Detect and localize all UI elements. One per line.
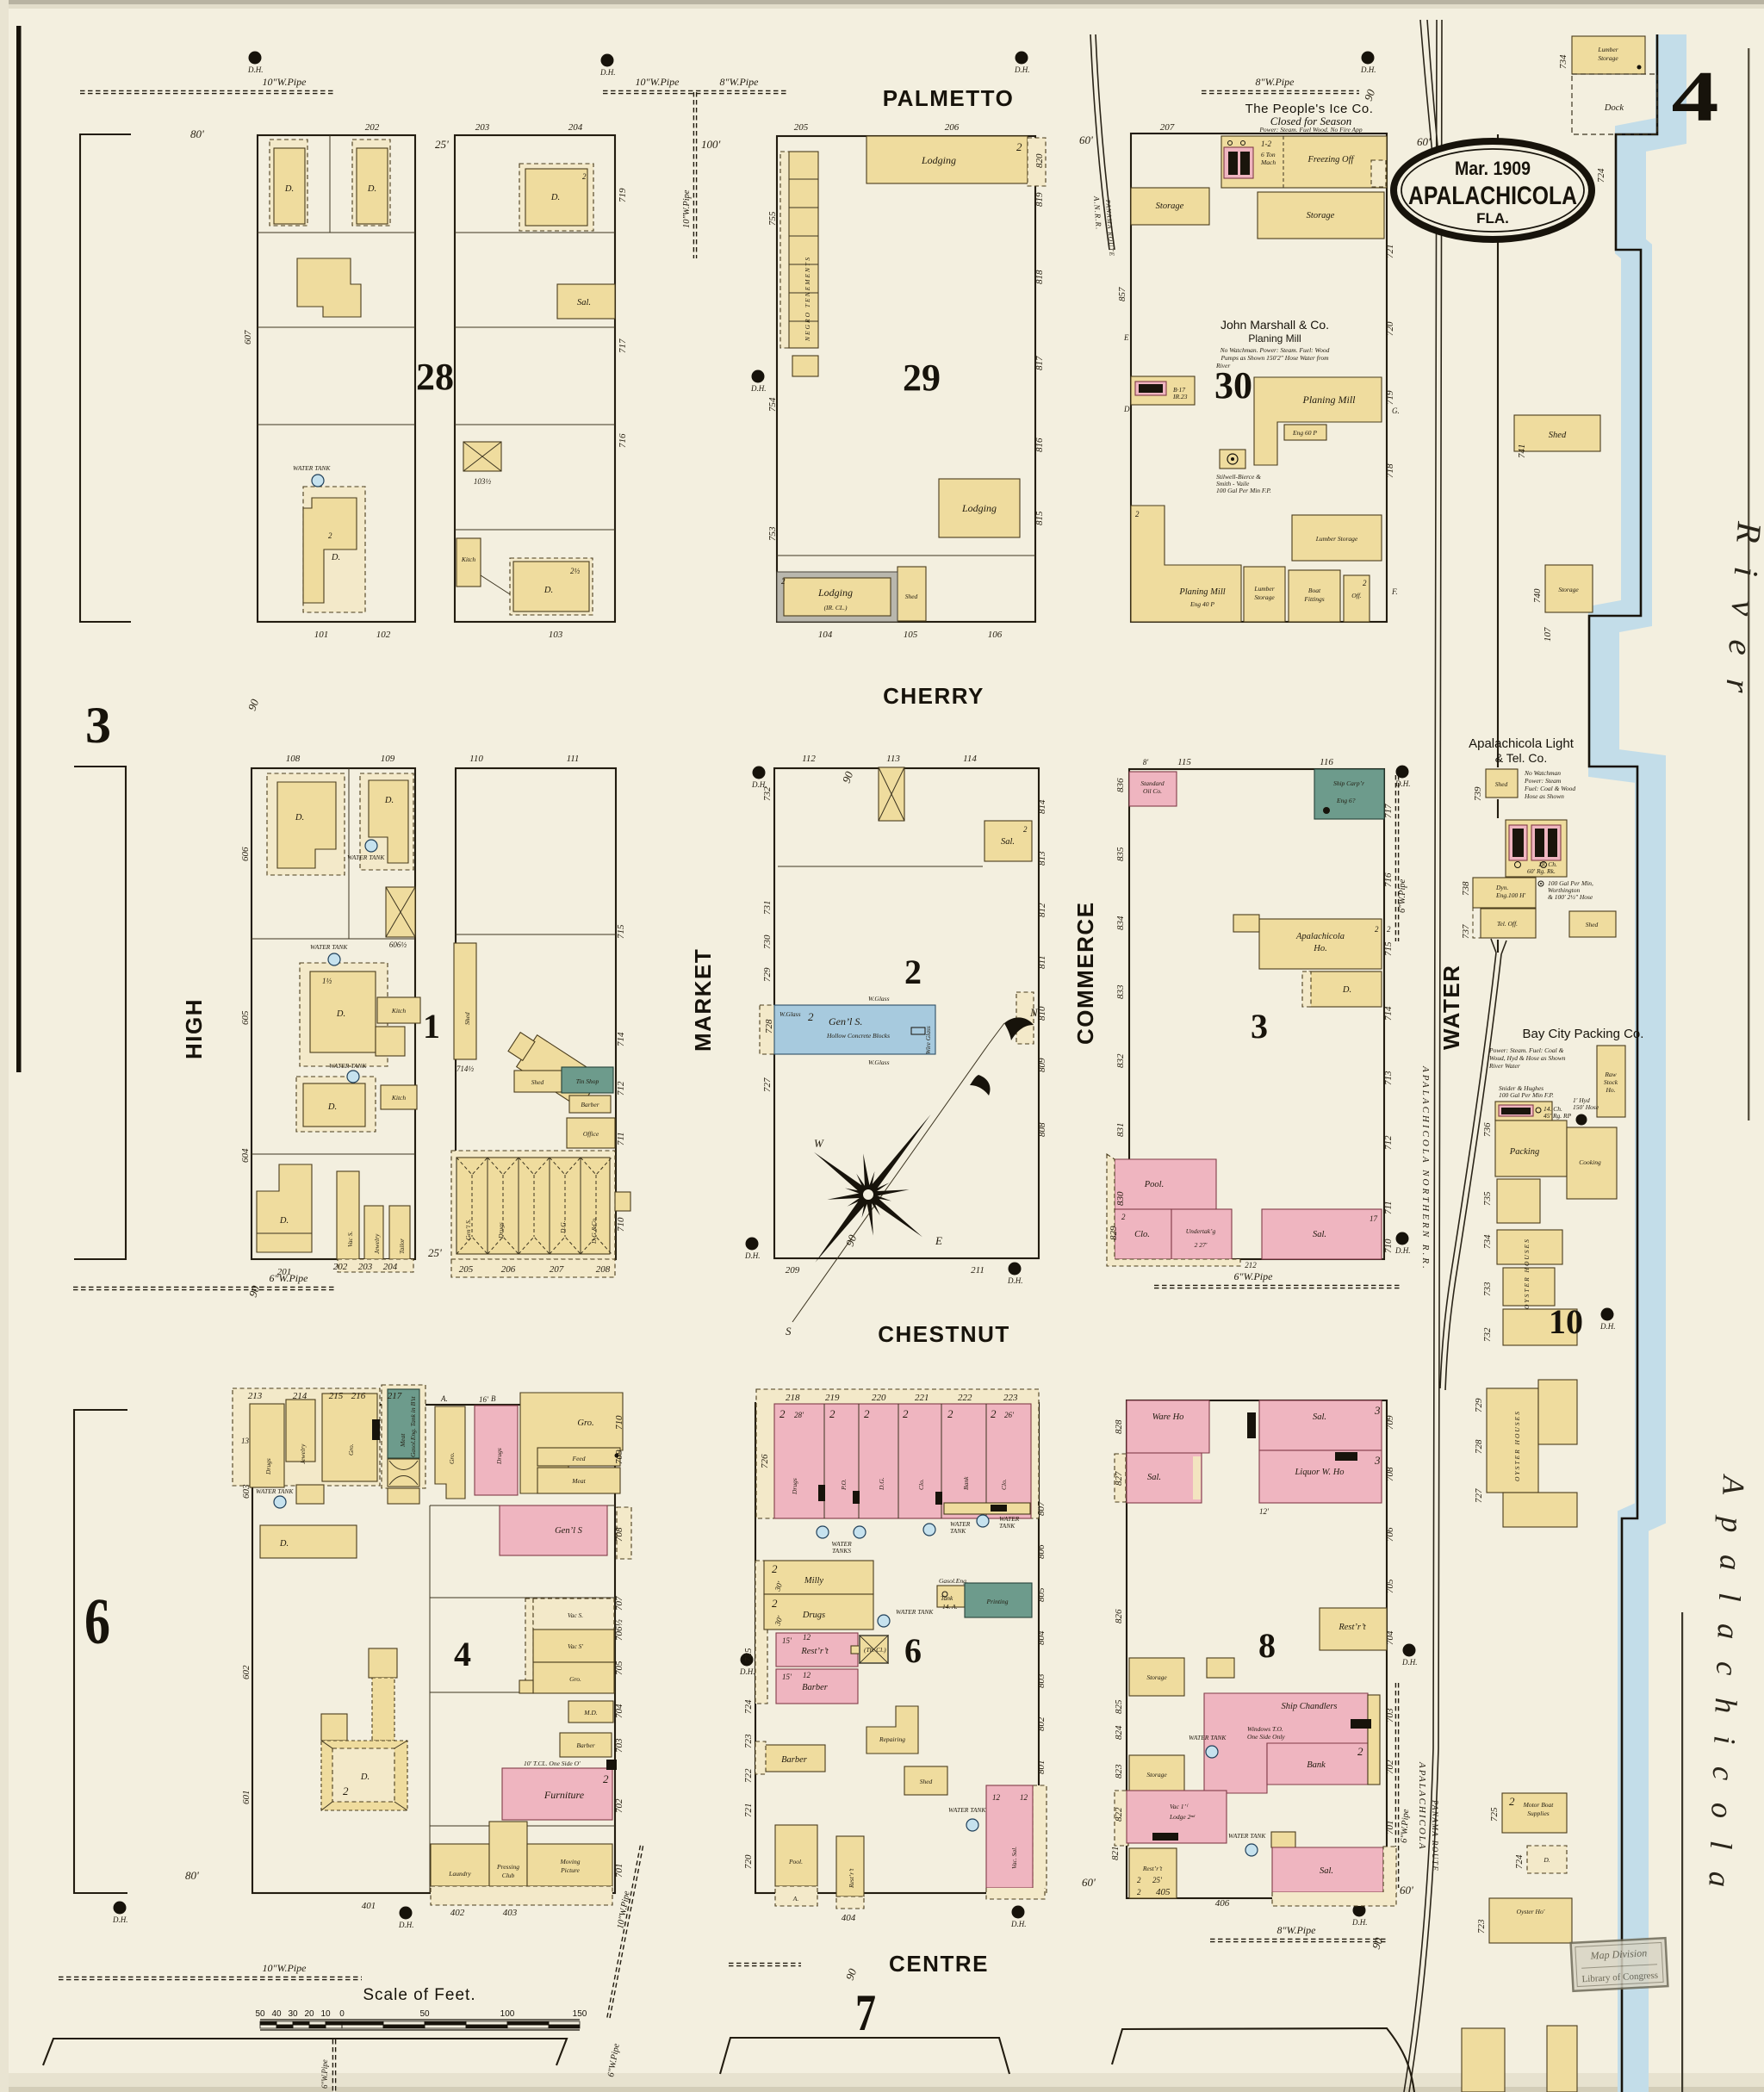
svg-text:604: 604 [240, 1148, 251, 1163]
svg-text:Hollow Concrete Blocks: Hollow Concrete Blocks [826, 1032, 890, 1040]
svg-text:15′: 15′ [782, 1636, 792, 1645]
svg-text:Shed: Shed [1586, 921, 1599, 928]
svg-text:403: 403 [503, 1908, 518, 1918]
svg-text:D.: D. [1543, 1856, 1550, 1864]
svg-text:Vac 1’⁽: Vac 1’⁽ [1170, 1803, 1189, 1810]
svg-text:Pumps as Shown 150'2" Hose Wat: Pumps as Shown 150'2" Hose Water from [1220, 354, 1329, 362]
svg-text:Supplies: Supplies [1527, 1810, 1549, 1817]
svg-text:729: 729 [1474, 1398, 1484, 1412]
svg-text:Gasol.Eng. Tank in B’st: Gasol.Eng. Tank in B’st [409, 1395, 417, 1457]
svg-text:223: 223 [1003, 1393, 1018, 1403]
svg-text:715: 715 [616, 924, 626, 939]
svg-text:2: 2 [903, 1407, 909, 1420]
svg-text:Office: Office [583, 1130, 599, 1138]
svg-text:Shed: Shed [920, 1778, 933, 1785]
svg-text:Barber: Barber [781, 1755, 808, 1765]
svg-text:606: 606 [240, 847, 251, 861]
svg-text:Lodging: Lodging [921, 154, 956, 166]
svg-text:60': 60' [1400, 1884, 1413, 1896]
svg-text:Jewelry: Jewelry [299, 1443, 307, 1464]
svg-text:724: 724 [743, 1699, 754, 1714]
svg-text:802: 802 [1036, 1716, 1047, 1731]
svg-text:Barber: Barber [802, 1683, 829, 1692]
svg-text:WATER TANK: WATER TANK [948, 1806, 986, 1814]
svg-text:HIGH: HIGH [181, 998, 207, 1059]
svg-text:725: 725 [1489, 1807, 1500, 1822]
svg-text:710: 710 [614, 1415, 624, 1430]
svg-text:D.H.: D.H. [1599, 1322, 1616, 1331]
svg-text:Picture: Picture [560, 1866, 580, 1874]
svg-text:D.G.: D.G. [878, 1477, 885, 1491]
svg-text:10"W.Pipe: 10"W.Pipe [263, 1962, 307, 1974]
svg-text:D.H.: D.H. [1394, 1246, 1411, 1255]
svg-text:713: 713 [1383, 1071, 1394, 1085]
svg-text:D.: D. [284, 184, 294, 194]
svg-text:738: 738 [1461, 881, 1471, 896]
svg-text:Power: Steam. Fuel: Coal &: Power: Steam. Fuel: Coal & [1488, 1046, 1564, 1054]
svg-text:D.G.: D.G. [559, 1220, 567, 1234]
svg-text:716: 716 [1383, 872, 1394, 887]
svg-text:725: 725 [743, 1648, 754, 1662]
svg-text:Vac S.: Vac S. [568, 1611, 583, 1619]
svg-text:(IR. CL.): (IR. CL.) [824, 604, 848, 611]
svg-text:D.H.: D.H. [750, 384, 767, 393]
svg-text:Gen’l S.: Gen’l S. [464, 1219, 472, 1240]
svg-text:Apalachicola: Apalachicola [1295, 932, 1345, 941]
svg-text:25′: 25′ [1152, 1876, 1163, 1884]
svg-text:810: 810 [1037, 1006, 1047, 1021]
svg-text:Gasol.Eng.: Gasol.Eng. [939, 1577, 968, 1585]
svg-text:811: 811 [1037, 955, 1047, 969]
svg-text:Storage: Storage [1558, 586, 1579, 593]
svg-text:857: 857 [1117, 287, 1127, 301]
svg-text:John Marshall & Co.: John Marshall & Co. [1221, 318, 1329, 332]
svg-text:105: 105 [904, 630, 918, 640]
svg-text:203: 203 [358, 1262, 373, 1272]
svg-text:WATER: WATER [1438, 965, 1464, 1050]
svg-text:45' Rg. RP: 45' Rg. RP [1543, 1112, 1572, 1120]
svg-text:B: B [491, 1394, 496, 1403]
svg-text:826: 826 [1114, 1609, 1124, 1623]
svg-text:D.H.: D.H. [744, 1251, 761, 1260]
svg-text:731: 731 [762, 901, 773, 916]
svg-text:726: 726 [760, 1454, 770, 1468]
svg-text:WATER TANK: WATER TANK [347, 854, 385, 861]
svg-text:D.: D. [295, 813, 304, 823]
svg-text:29: 29 [903, 357, 941, 399]
svg-text:Eng 40 P: Eng 40 P [1189, 600, 1214, 608]
svg-text:2: 2 [1387, 925, 1391, 934]
svg-text:727: 727 [762, 1077, 773, 1092]
svg-text:2: 2 [947, 1407, 953, 1420]
svg-text:Vac S′: Vac S′ [568, 1642, 583, 1650]
svg-text:3: 3 [1374, 1454, 1381, 1467]
svg-text:River Water: River Water [1488, 1062, 1520, 1070]
svg-text:808: 808 [1037, 1122, 1047, 1137]
svg-text:10: 10 [320, 2009, 331, 2019]
svg-text:Lumber: Lumber [1597, 46, 1618, 53]
svg-text:Tank: Tank [941, 1594, 953, 1602]
svg-text:712: 712 [616, 1081, 626, 1096]
svg-text:Shed: Shed [531, 1078, 544, 1086]
svg-text:107: 107 [1543, 627, 1553, 642]
svg-text:211: 211 [971, 1265, 984, 1276]
svg-text:W.Glass: W.Glass [868, 1058, 890, 1066]
svg-text:D.H.: D.H. [1010, 1920, 1027, 1928]
svg-text:817: 817 [1034, 356, 1045, 370]
svg-text:827: 827 [1114, 1471, 1124, 1486]
svg-text:W: W [814, 1137, 824, 1150]
svg-text:Windows T.O.: Windows T.O. [1247, 1725, 1283, 1733]
svg-text:Eng 6?: Eng 6? [1336, 797, 1356, 804]
svg-text:S: S [786, 1325, 792, 1338]
svg-text:Shed: Shed [1495, 780, 1508, 788]
svg-text:109: 109 [381, 754, 395, 764]
svg-text:6"W.Pipe: 6"W.Pipe [1234, 1270, 1274, 1282]
svg-text:E: E [935, 1234, 942, 1247]
svg-text:17: 17 [1370, 1214, 1378, 1223]
svg-text:OYSTER HOUSES: OYSTER HOUSES [1513, 1410, 1521, 1481]
svg-text:Oyster Ho′: Oyster Ho′ [1517, 1908, 1545, 1915]
svg-text:Meat: Meat [399, 1433, 407, 1448]
svg-text:106: 106 [988, 630, 1003, 640]
svg-text:205: 205 [459, 1264, 474, 1275]
svg-text:708: 708 [614, 1527, 624, 1542]
svg-text:Laundry: Laundry [448, 1870, 471, 1878]
svg-text:110: 110 [469, 754, 483, 764]
svg-text:150' Hose: 150' Hose [1573, 1103, 1599, 1111]
svg-text:Shed: Shed [905, 593, 918, 600]
svg-text:Sal.: Sal. [1147, 1473, 1161, 1482]
svg-text:D.: D. [360, 1772, 370, 1782]
svg-text:Gro.: Gro. [448, 1452, 456, 1464]
svg-text:Gro.: Gro. [569, 1675, 581, 1683]
svg-text:Motor Boat: Motor Boat [1523, 1801, 1555, 1809]
svg-text:Vac S.: Vac S. [346, 1232, 354, 1247]
svg-text:30: 30 [288, 2009, 298, 2019]
svg-text:16': 16' [479, 1395, 489, 1404]
svg-text:12′: 12′ [1259, 1507, 1270, 1516]
svg-text:Drugs: Drugs [497, 1222, 505, 1239]
svg-text:Drugs: Drugs [495, 1448, 503, 1465]
svg-text:D.: D. [327, 1102, 337, 1112]
svg-text:D.: D. [550, 193, 560, 202]
svg-text:2: 2 [781, 577, 786, 586]
svg-text:202: 202 [365, 122, 380, 133]
svg-text:818: 818 [1034, 270, 1045, 284]
svg-text:D.H.: D.H. [1014, 65, 1030, 74]
svg-text:201: 201 [277, 1267, 292, 1277]
svg-text:12: 12 [992, 1793, 1001, 1802]
svg-text:Oil Co.: Oil Co. [1143, 787, 1162, 795]
svg-text:Fittings: Fittings [1303, 595, 1324, 603]
svg-text:60': 60' [1079, 133, 1093, 146]
svg-text:Milly: Milly [804, 1576, 823, 1586]
svg-text:404: 404 [842, 1913, 856, 1923]
svg-text:2: 2 [1137, 1876, 1141, 1884]
svg-text:214: 214 [293, 1391, 307, 1401]
svg-text:717: 717 [1383, 804, 1394, 818]
svg-text:207: 207 [550, 1264, 564, 1275]
svg-text:10′ T.CL. One Side O′: 10′ T.CL. One Side O′ [524, 1760, 581, 1767]
svg-text:Bay City Packing Co.: Bay City Packing Co. [1523, 1027, 1644, 1041]
svg-text:2: 2 [829, 1407, 835, 1420]
svg-text:Kitch: Kitch [391, 1094, 406, 1102]
svg-text:Fuel: Coal & Wood: Fuel: Coal & Wood [1524, 785, 1575, 792]
svg-text:806: 806 [1036, 1544, 1047, 1559]
svg-text:832: 832 [1115, 1053, 1126, 1068]
svg-text:607: 607 [243, 330, 253, 345]
svg-text:835: 835 [1115, 847, 1126, 861]
svg-text:P.O.: P.O. [840, 1479, 848, 1491]
svg-text:218: 218 [786, 1393, 800, 1403]
svg-text:Moving: Moving [560, 1858, 581, 1865]
svg-text:701: 701 [614, 1864, 624, 1878]
svg-text:Feed: Feed [572, 1455, 586, 1462]
svg-text:Lodging: Lodging [817, 587, 853, 599]
svg-text:712: 712 [1383, 1135, 1394, 1150]
svg-text:Pressing: Pressing [496, 1863, 519, 1871]
svg-text:Wire Glass: Wire Glass [924, 1026, 932, 1054]
svg-text:80': 80' [190, 127, 204, 140]
svg-text:101: 101 [314, 630, 329, 640]
svg-text:723: 723 [743, 1734, 754, 1748]
svg-text:Mar. 1909: Mar. 1909 [1455, 158, 1531, 179]
svg-text:740: 740 [1532, 588, 1543, 603]
svg-text:D.H.: D.H. [1351, 1918, 1368, 1927]
svg-text:28′: 28′ [794, 1411, 804, 1419]
svg-text:Hose as Shown: Hose as Shown [1524, 792, 1564, 800]
svg-text:Freezing Off: Freezing Off [1307, 155, 1356, 165]
svg-text:& Tel. Co.: & Tel. Co. [1495, 751, 1547, 765]
svg-text:Standard: Standard [1140, 779, 1164, 787]
svg-text:2: 2 [772, 1597, 778, 1610]
svg-text:711: 711 [1383, 1201, 1394, 1214]
svg-text:724: 724 [1596, 168, 1606, 183]
svg-text:6"W.Pipe: 6"W.Pipe [1400, 1809, 1411, 1843]
svg-text:112: 112 [802, 754, 816, 764]
svg-text:732: 732 [1482, 1327, 1493, 1342]
svg-text:D.H.: D.H. [599, 68, 616, 77]
svg-text:TANK: TANK [999, 1522, 1016, 1530]
svg-text:Planing Mill: Planing Mill [1178, 587, 1225, 597]
svg-text:100': 100' [701, 138, 721, 151]
svg-text:Boat: Boat [1308, 587, 1321, 594]
svg-text:15′: 15′ [782, 1673, 792, 1681]
svg-text:0: 0 [339, 2009, 345, 2019]
svg-text:D: D [1123, 405, 1130, 413]
svg-text:FLA.: FLA. [1476, 210, 1509, 227]
svg-text:606½: 606½ [389, 940, 407, 949]
svg-text:D.: D. [543, 586, 553, 595]
svg-text:MARKET: MARKET [690, 948, 716, 1052]
svg-text:D.H.: D.H. [398, 1921, 414, 1929]
svg-text:3: 3 [1251, 1007, 1268, 1046]
svg-text:TANK: TANK [950, 1527, 966, 1535]
svg-text:803: 803 [1036, 1673, 1047, 1688]
svg-text:703: 703 [614, 1738, 624, 1753]
svg-text:50: 50 [419, 2009, 430, 2019]
svg-text:728: 728 [1474, 1439, 1484, 1454]
svg-text:Cooking: Cooking [1579, 1158, 1601, 1166]
svg-text:754: 754 [767, 397, 778, 412]
svg-text:Mach: Mach [1260, 158, 1276, 166]
svg-text:807: 807 [1036, 1501, 1047, 1516]
svg-text:831: 831 [1115, 1123, 1126, 1138]
svg-text:D.H.: D.H. [112, 1915, 128, 1924]
svg-text:Sal.: Sal. [1320, 1866, 1333, 1876]
svg-text:Scale of Feet.: Scale of Feet. [363, 1986, 475, 2004]
svg-text:WATER TANK: WATER TANK [293, 464, 331, 472]
svg-text:& 100′ 2½″ Hose: & 100′ 2½″ Hose [1548, 893, 1593, 901]
svg-text:WATER TANK: WATER TANK [329, 1062, 367, 1070]
svg-text:No Watchman: No Watchman [1524, 769, 1561, 777]
svg-text:2: 2 [1023, 825, 1028, 834]
svg-text:Eng 60 P: Eng 60 P [1292, 429, 1317, 437]
svg-text:215: 215 [329, 1391, 344, 1401]
svg-text:D.H.: D.H. [1007, 1276, 1023, 1285]
svg-text:Sal.: Sal. [1313, 1412, 1326, 1422]
svg-text:D.: D. [279, 1216, 289, 1226]
svg-text:813: 813 [1037, 851, 1047, 866]
svg-text:12: 12 [803, 1671, 811, 1679]
svg-text:2: 2 [1357, 1745, 1363, 1758]
svg-text:8: 8 [1258, 1626, 1276, 1665]
svg-text:Rest’r’t: Rest’r’t [800, 1647, 829, 1656]
svg-text:D.: D. [336, 1009, 345, 1019]
svg-text:APALACHICOLA NORTHERN R.R.: APALACHICOLA NORTHERN R.R. [1420, 1065, 1431, 1271]
svg-text:719: 719 [1385, 390, 1395, 405]
svg-text:829: 829 [1109, 1226, 1119, 1240]
svg-text:823: 823 [1114, 1764, 1124, 1779]
svg-text:2: 2 [864, 1407, 870, 1420]
svg-text:115: 115 [1177, 757, 1191, 767]
svg-text:822: 822 [1114, 1807, 1124, 1822]
svg-text:729: 729 [762, 967, 773, 982]
svg-text:Vac. Sal.: Vac. Sal. [1010, 1847, 1018, 1869]
svg-text:219: 219 [825, 1393, 840, 1403]
svg-text:Power: Steam. Fuel Wood. No Fi: Power: Steam. Fuel Wood. No Fire App [1258, 126, 1363, 133]
svg-text:WATER TANK: WATER TANK [1228, 1832, 1266, 1840]
svg-text:Pool.: Pool. [788, 1858, 803, 1865]
svg-text:753: 753 [767, 526, 778, 541]
svg-text:APALACHICOLA: APALACHICOLA [1417, 1761, 1427, 1851]
svg-text:702: 702 [614, 1798, 624, 1813]
svg-text:Gro.: Gro. [347, 1443, 355, 1456]
svg-text:Clo.: Clo. [1134, 1230, 1150, 1239]
svg-text:721: 721 [1385, 245, 1395, 259]
svg-text:709: 709 [1385, 1415, 1395, 1430]
svg-text:Repairing: Repairing [879, 1735, 905, 1743]
svg-text:703: 703 [1385, 1708, 1395, 1723]
svg-text:2: 2 [603, 1772, 609, 1785]
svg-text:212: 212 [1245, 1261, 1257, 1269]
svg-text:D.: D. [367, 184, 376, 194]
svg-text:3: 3 [85, 697, 111, 754]
svg-text:Storage: Storage [1254, 593, 1275, 601]
svg-text:14. A.: 14. A. [942, 1603, 958, 1611]
svg-text:Barber: Barber [576, 1741, 594, 1749]
svg-text:Tailor: Tailor [398, 1238, 406, 1254]
svg-text:739: 739 [1473, 786, 1483, 801]
svg-text:821: 821 [1110, 1847, 1121, 1861]
svg-text:714½: 714½ [457, 1065, 475, 1073]
svg-text:Gen’l S.: Gen’l S. [829, 1015, 862, 1027]
svg-text:203: 203 [475, 122, 490, 133]
svg-text:102: 102 [376, 630, 391, 640]
svg-text:Lodge 2ⁿᵈ: Lodge 2ⁿᵈ [1169, 1813, 1196, 1821]
svg-text:716: 716 [618, 433, 628, 448]
svg-text:Planing Mill: Planing Mill [1302, 394, 1357, 406]
svg-text:Ship Chandlers: Ship Chandlers [1281, 1702, 1337, 1711]
svg-text:Ho.: Ho. [1605, 1086, 1615, 1094]
svg-text:Bank: Bank [1307, 1760, 1326, 1770]
svg-text:2: 2 [808, 1010, 814, 1023]
svg-text:735: 735 [1482, 1191, 1493, 1206]
svg-text:28: 28 [416, 356, 454, 398]
svg-text:Gen’l S: Gen’l S [555, 1526, 583, 1536]
svg-text:60': 60' [1417, 135, 1431, 148]
svg-text:718: 718 [1385, 463, 1395, 478]
svg-text:717: 717 [618, 338, 628, 353]
svg-text:4: 4 [454, 1635, 471, 1673]
svg-text:709: 709 [614, 1450, 624, 1464]
svg-text:401: 401 [362, 1901, 376, 1911]
svg-text:Bank: Bank [962, 1476, 970, 1490]
svg-text:Sal.: Sal. [1313, 1230, 1326, 1239]
svg-text:40: 40 [271, 2009, 282, 2019]
svg-text:10"W.Pipe: 10"W.Pipe [263, 76, 307, 88]
svg-text:20: 20 [304, 2009, 314, 2019]
svg-text:828: 828 [1114, 1419, 1124, 1434]
svg-text:PANAMA ROUTE: PANAMA ROUTE [1431, 1799, 1439, 1872]
svg-text:722: 722 [743, 1768, 754, 1783]
svg-text:816: 816 [1034, 438, 1045, 452]
svg-text:Planing Mill: Planing Mill [1248, 332, 1301, 345]
svg-text:Sal.: Sal. [577, 298, 591, 307]
svg-text:CENTRE: CENTRE [889, 1951, 989, 1977]
svg-text:737: 737 [1461, 924, 1471, 939]
svg-text:205: 205 [794, 122, 809, 133]
svg-text:Lodging: Lodging [961, 502, 997, 514]
svg-text:727: 727 [1474, 1488, 1484, 1503]
svg-text:6 Ton: 6 Ton [1261, 151, 1276, 158]
svg-text:60': 60' [1082, 1876, 1096, 1889]
svg-text:605: 605 [240, 1010, 251, 1025]
svg-text:Barber: Barber [581, 1101, 599, 1108]
svg-text:F.: F. [1391, 587, 1398, 596]
svg-text:WATER TANK: WATER TANK [1189, 1734, 1227, 1741]
svg-text:805: 805 [1036, 1587, 1047, 1602]
svg-text:6"W.Pipe: 6"W.Pipe [1398, 878, 1407, 913]
svg-text:2: 2 [1121, 1213, 1126, 1221]
svg-text:734: 734 [1558, 54, 1568, 69]
svg-text:Liquor W. Ho: Liquor W. Ho [1294, 1468, 1344, 1477]
svg-text:30: 30 [1214, 364, 1252, 407]
svg-text:D.H.: D.H. [1394, 779, 1411, 788]
svg-text:714: 714 [616, 1032, 626, 1046]
svg-text:2: 2 [328, 531, 332, 540]
svg-text:Undertak’g: Undertak’g [1186, 1227, 1216, 1235]
svg-text:Gro.: Gro. [577, 1418, 593, 1428]
svg-text:Rest’r’t: Rest’r’t [1338, 1623, 1366, 1632]
svg-text:Shed: Shed [463, 1012, 471, 1025]
svg-text:741: 741 [1517, 444, 1527, 459]
svg-text:213: 213 [248, 1391, 263, 1401]
svg-text:2: 2 [991, 1407, 997, 1420]
svg-text:CHERRY: CHERRY [883, 683, 984, 709]
svg-text:No Watchman. Power: Steam. Fue: No Watchman. Power: Steam. Fuel: Wood [1220, 346, 1330, 354]
